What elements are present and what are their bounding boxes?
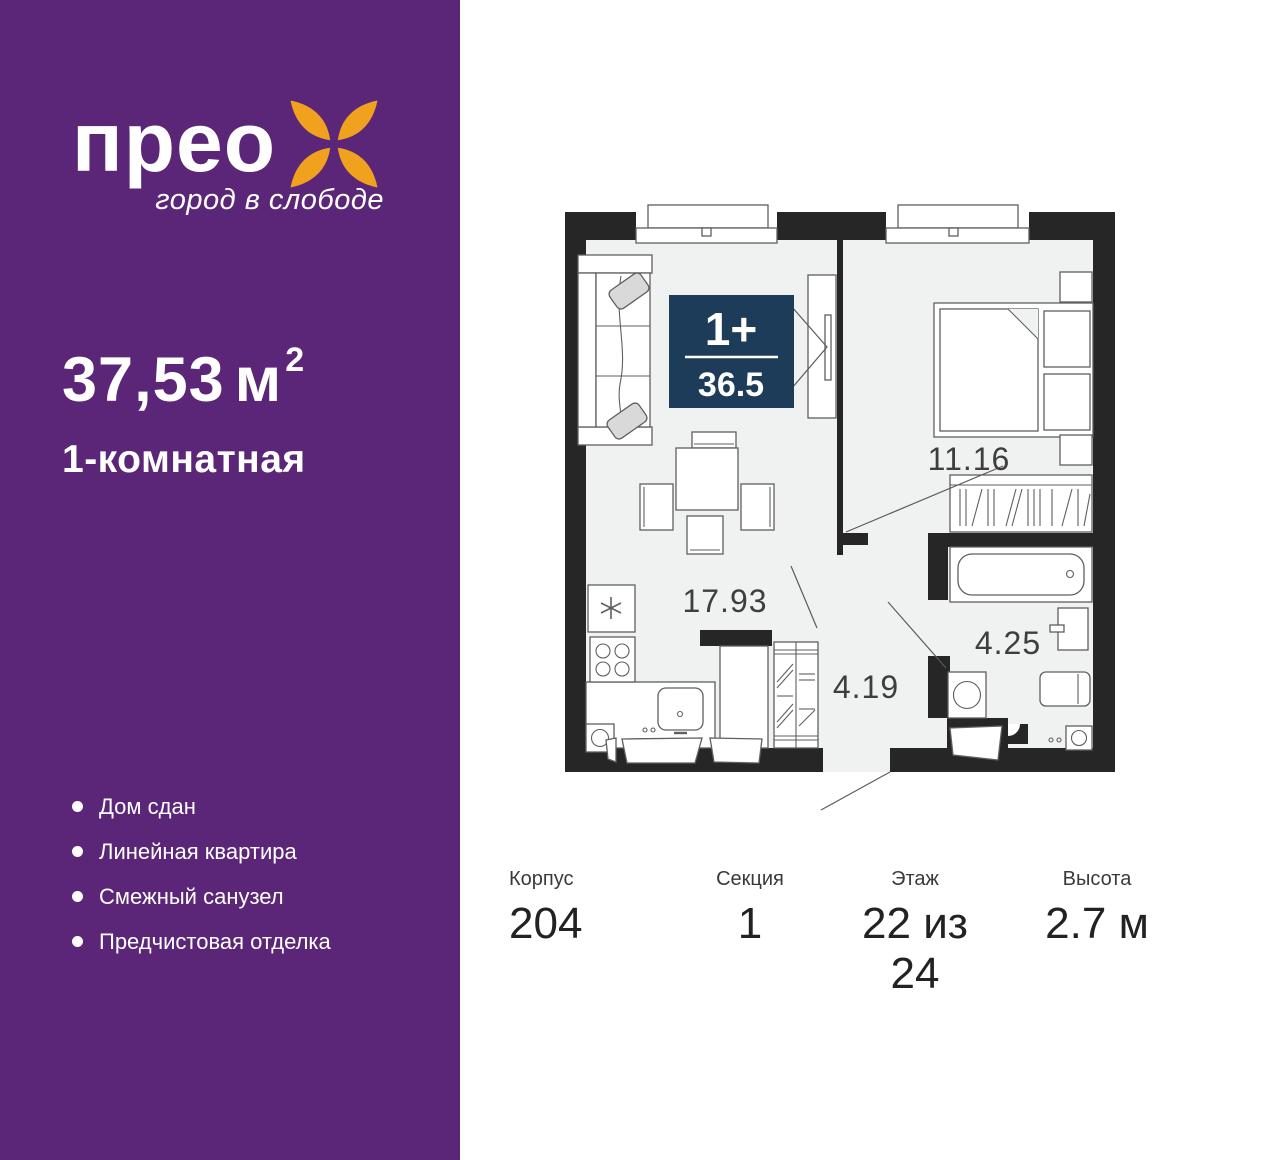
list-item: Дом сдан: [72, 784, 331, 829]
stat-label: Корпус: [509, 868, 582, 891]
plan-badge: 1+ 36.5: [669, 295, 794, 408]
entrance-opening: [823, 748, 890, 772]
window: [886, 205, 1029, 243]
apartment-stats: Корпус 204 Секция 1 Этаж 22 из 24 Высота…: [0, 868, 1280, 968]
badge-rooms: 1+: [705, 303, 757, 355]
stat-label: Этаж: [835, 868, 995, 891]
kitchen-sink: [658, 688, 703, 733]
room-label-bedroom: 11.16: [928, 441, 1011, 477]
area-unit: м: [235, 345, 282, 415]
stat-value: 1: [690, 899, 810, 949]
bullet-dot-icon: [72, 801, 83, 812]
kitchen-cabinet: [720, 646, 768, 748]
bed-pillow: [1044, 374, 1090, 430]
nightstand: [1060, 272, 1092, 302]
stove-icon: [590, 637, 635, 682]
four-petal-flower-icon: [282, 92, 386, 196]
feature-label: Дом сдан: [99, 794, 196, 820]
stat-building: Корпус 204: [509, 868, 582, 949]
brand-logo: прео город в слободе: [72, 92, 392, 217]
window: [636, 205, 777, 243]
room-label-bathroom: 4.25: [975, 625, 1041, 661]
bathtub: [950, 547, 1092, 602]
sidebar: прео город в слободе 37,53м2 1-комнатная…: [0, 0, 460, 1160]
hallway-wardrobe: [774, 642, 818, 748]
stat-value: 204: [509, 899, 582, 949]
floor-plan: 1+ 36.5 17.93 11.16 4.25 4.19: [556, 204, 1120, 824]
entrance-door-swing: [821, 772, 890, 810]
bed-pillow: [1044, 311, 1090, 367]
stat-label: Секция: [690, 868, 810, 891]
room-label-kitchen-living: 17.93: [682, 583, 767, 619]
area-value: 37,53: [62, 345, 225, 415]
stat-value: 2.7 м: [1022, 899, 1172, 949]
badge-area: 36.5: [698, 366, 764, 404]
stat-label: Высота: [1022, 868, 1172, 891]
sofa: [578, 255, 652, 445]
stat-value: 22 из 24: [835, 899, 995, 999]
brand-wordmark: прео: [72, 92, 276, 192]
feature-label: Линейная квартира: [99, 839, 297, 865]
vanity-cabinet: [1040, 672, 1090, 706]
bedroom-wardrobe: [950, 475, 1092, 532]
nightstand: [1060, 435, 1092, 465]
area-superscript: 2: [285, 341, 304, 379]
room-label-hallway: 4.19: [833, 669, 899, 705]
stat-floor: Этаж 22 из 24: [835, 868, 995, 999]
stat-section: Секция 1: [690, 868, 810, 949]
rooms-count-label: 1-комнатная: [62, 438, 306, 482]
apartment-area: 37,53м2: [62, 344, 304, 416]
stat-height: Высота 2.7 м: [1022, 868, 1172, 949]
apartment-card: прео город в слободе 37,53м2 1-комнатная…: [0, 0, 1280, 1160]
bullet-dot-icon: [72, 846, 83, 857]
washing-machine: [948, 672, 986, 718]
